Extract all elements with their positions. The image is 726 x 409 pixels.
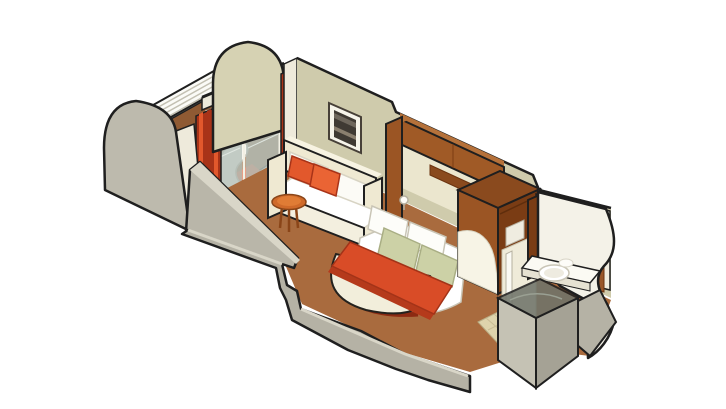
stateroom-isometric-svg [0,0,726,409]
shower-stall [498,279,578,388]
stateroom-illustration [0,0,726,409]
sink-basin [544,268,564,278]
soap-dish [559,259,573,267]
